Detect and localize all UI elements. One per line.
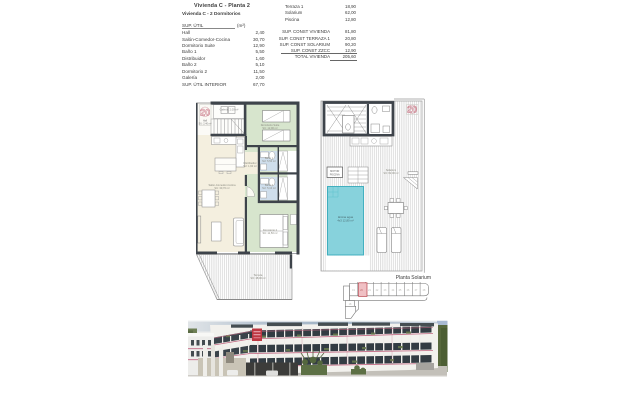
svg-text:SU: 1,60 m²: SU: 1,60 m² [243,164,257,168]
svg-text:20: 20 [200,107,210,117]
svg-text:20: 20 [407,105,417,115]
svg-text:SU: 5,50 m²: SU: 5,50 m² [262,159,276,163]
svg-text:SU: 30,70 m²: SU: 30,70 m² [214,186,229,190]
svg-text:Galería: 2,00 m²: Galería: 2,00 m² [220,108,239,112]
svg-text:SU: 12,90 m²: SU: 12,90 m² [262,126,277,130]
svg-text:4x3 12,80 m²: 4x3 12,80 m² [337,219,353,223]
svg-text:SU: 2,40 m²: SU: 2,40 m² [199,122,212,125]
svg-text:SU: 5,10 m²: SU: 5,10 m² [262,186,276,190]
svg-text:PISCINA: PISCINA [330,173,340,176]
svg-text:SU: 11,50 m²: SU: 11,50 m² [262,231,277,235]
svg-text:SU: 62,00 m²: SU: 62,00 m² [383,171,398,175]
svg-text:SU: 18,90 m²: SU: 18,90 m² [250,276,265,280]
